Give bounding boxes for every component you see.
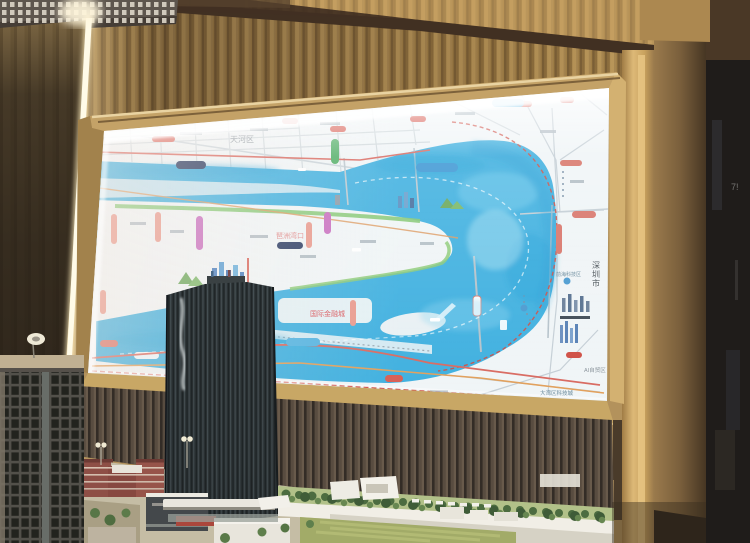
- svg-text:7!: 7!: [731, 182, 739, 192]
